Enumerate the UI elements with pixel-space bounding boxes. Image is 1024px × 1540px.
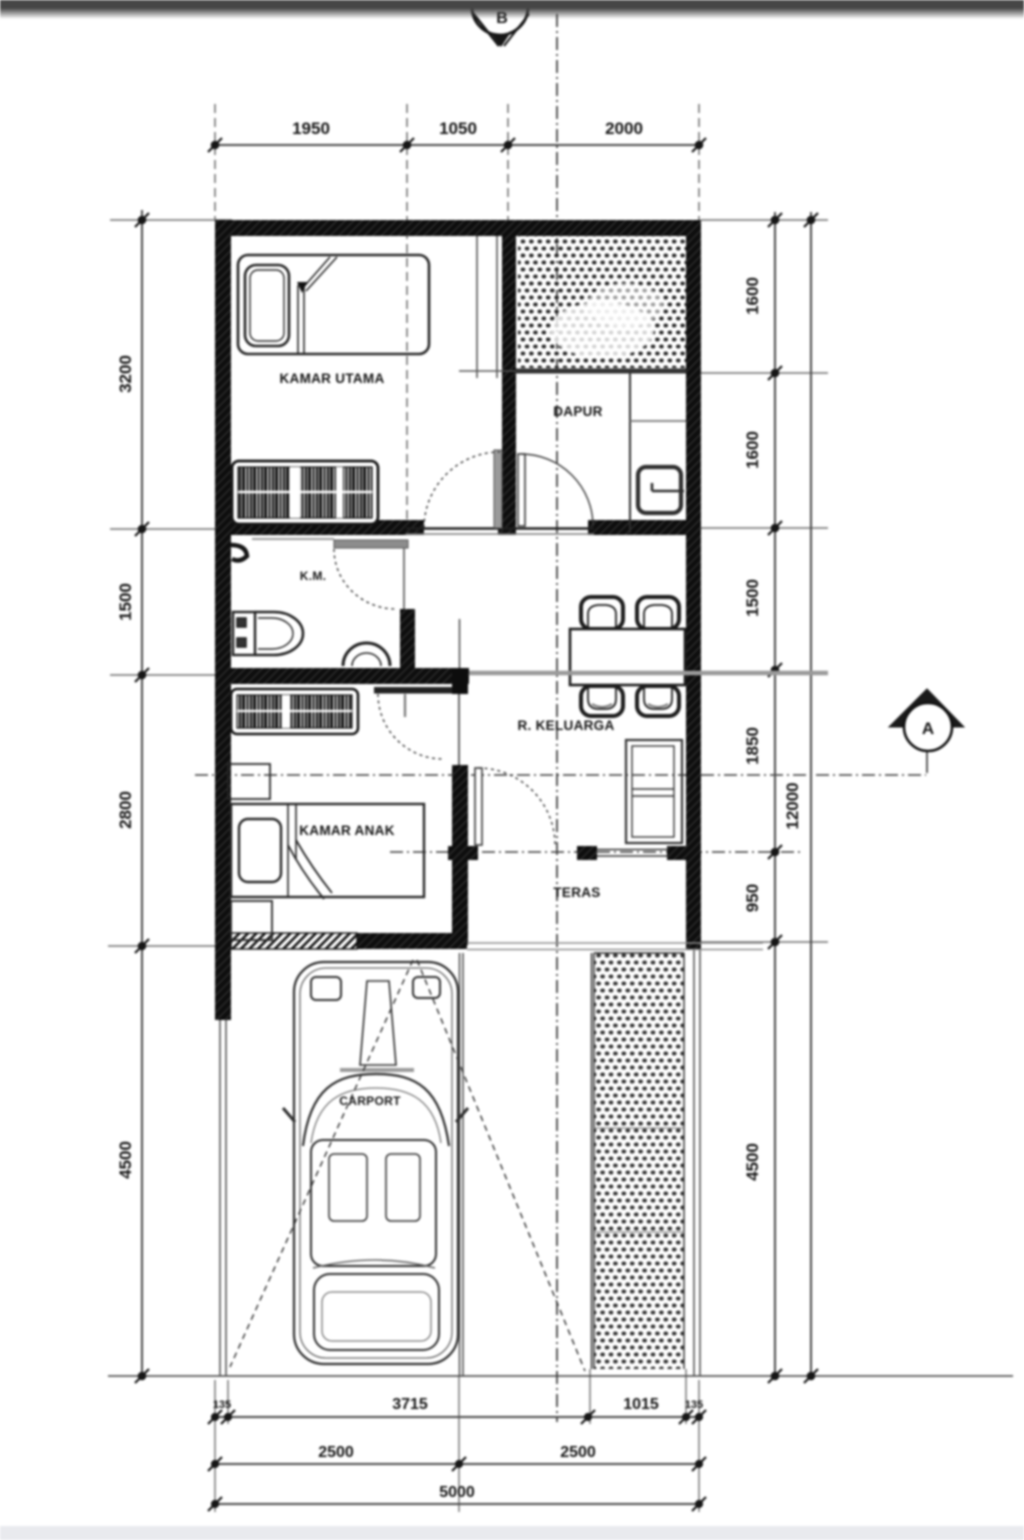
svg-text:12000: 12000 [783, 782, 802, 829]
svg-text:TERAS: TERAS [553, 885, 600, 900]
svg-text:1600: 1600 [743, 431, 762, 469]
svg-text:K.M.: K.M. [300, 569, 327, 583]
svg-text:135: 135 [685, 1399, 703, 1411]
svg-text:4500: 4500 [743, 1143, 762, 1181]
svg-text:3200: 3200 [116, 355, 135, 393]
svg-text:A: A [922, 719, 934, 738]
svg-text:1850: 1850 [743, 727, 762, 765]
svg-text:135: 135 [213, 1399, 231, 1411]
svg-text:2800: 2800 [116, 791, 135, 829]
svg-text:1600: 1600 [743, 277, 762, 315]
svg-text:950: 950 [743, 884, 762, 912]
svg-text:1050: 1050 [439, 119, 477, 138]
svg-text:R. KELUARGA: R. KELUARGA [517, 718, 614, 733]
svg-text:DAPUR: DAPUR [553, 404, 603, 419]
svg-text:KAMAR UTAMA: KAMAR UTAMA [279, 371, 384, 386]
svg-text:1500: 1500 [116, 583, 135, 621]
svg-text:3715: 3715 [392, 1396, 428, 1413]
svg-text:2500: 2500 [560, 1444, 596, 1461]
svg-text:1950: 1950 [292, 119, 330, 138]
svg-text:CARPORT: CARPORT [339, 1094, 401, 1108]
svg-text:2500: 2500 [318, 1444, 354, 1461]
svg-text:4500: 4500 [116, 1141, 135, 1179]
svg-text:5000: 5000 [439, 1484, 475, 1501]
svg-text:KAMAR ANAK: KAMAR ANAK [299, 823, 395, 838]
svg-text:2000: 2000 [605, 119, 643, 138]
svg-text:1500: 1500 [743, 579, 762, 617]
svg-text:1015: 1015 [623, 1396, 659, 1413]
